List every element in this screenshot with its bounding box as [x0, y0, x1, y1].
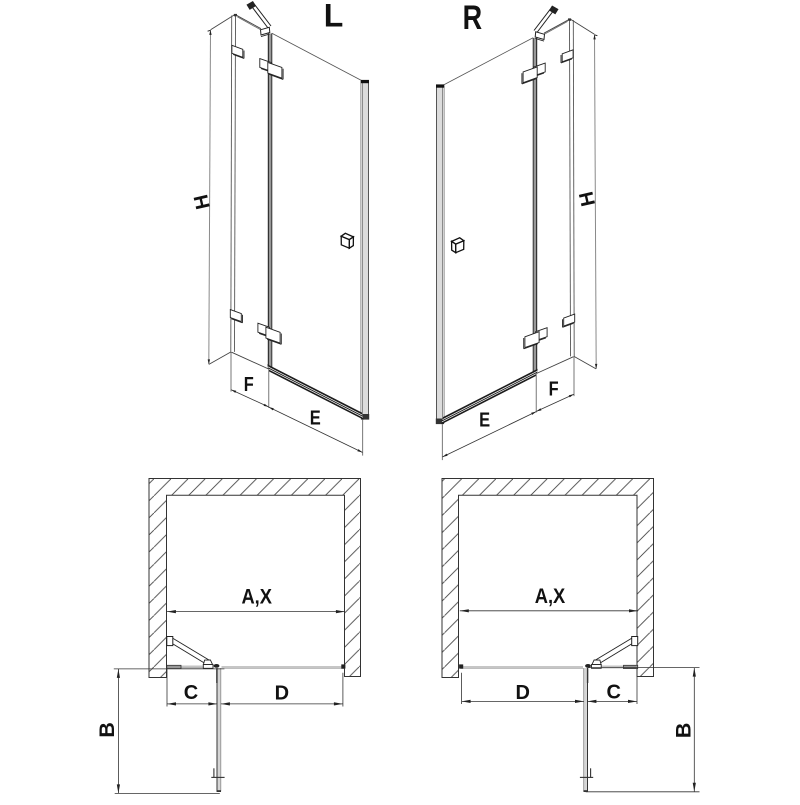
- svg-text:L: L: [324, 0, 344, 34]
- svg-text:R: R: [463, 0, 483, 37]
- svg-text:B: B: [672, 723, 696, 739]
- svg-text:E: E: [479, 409, 490, 431]
- svg-text:D: D: [515, 682, 529, 704]
- svg-text:F: F: [549, 379, 559, 401]
- svg-text:E: E: [310, 407, 321, 429]
- svg-text:D: D: [275, 682, 289, 704]
- svg-text:F: F: [244, 374, 254, 396]
- svg-text:B: B: [95, 722, 119, 738]
- svg-text:C: C: [606, 682, 620, 704]
- svg-text:C: C: [184, 682, 198, 704]
- svg-text:A,X: A,X: [241, 585, 272, 608]
- svg-text:A,X: A,X: [535, 585, 566, 608]
